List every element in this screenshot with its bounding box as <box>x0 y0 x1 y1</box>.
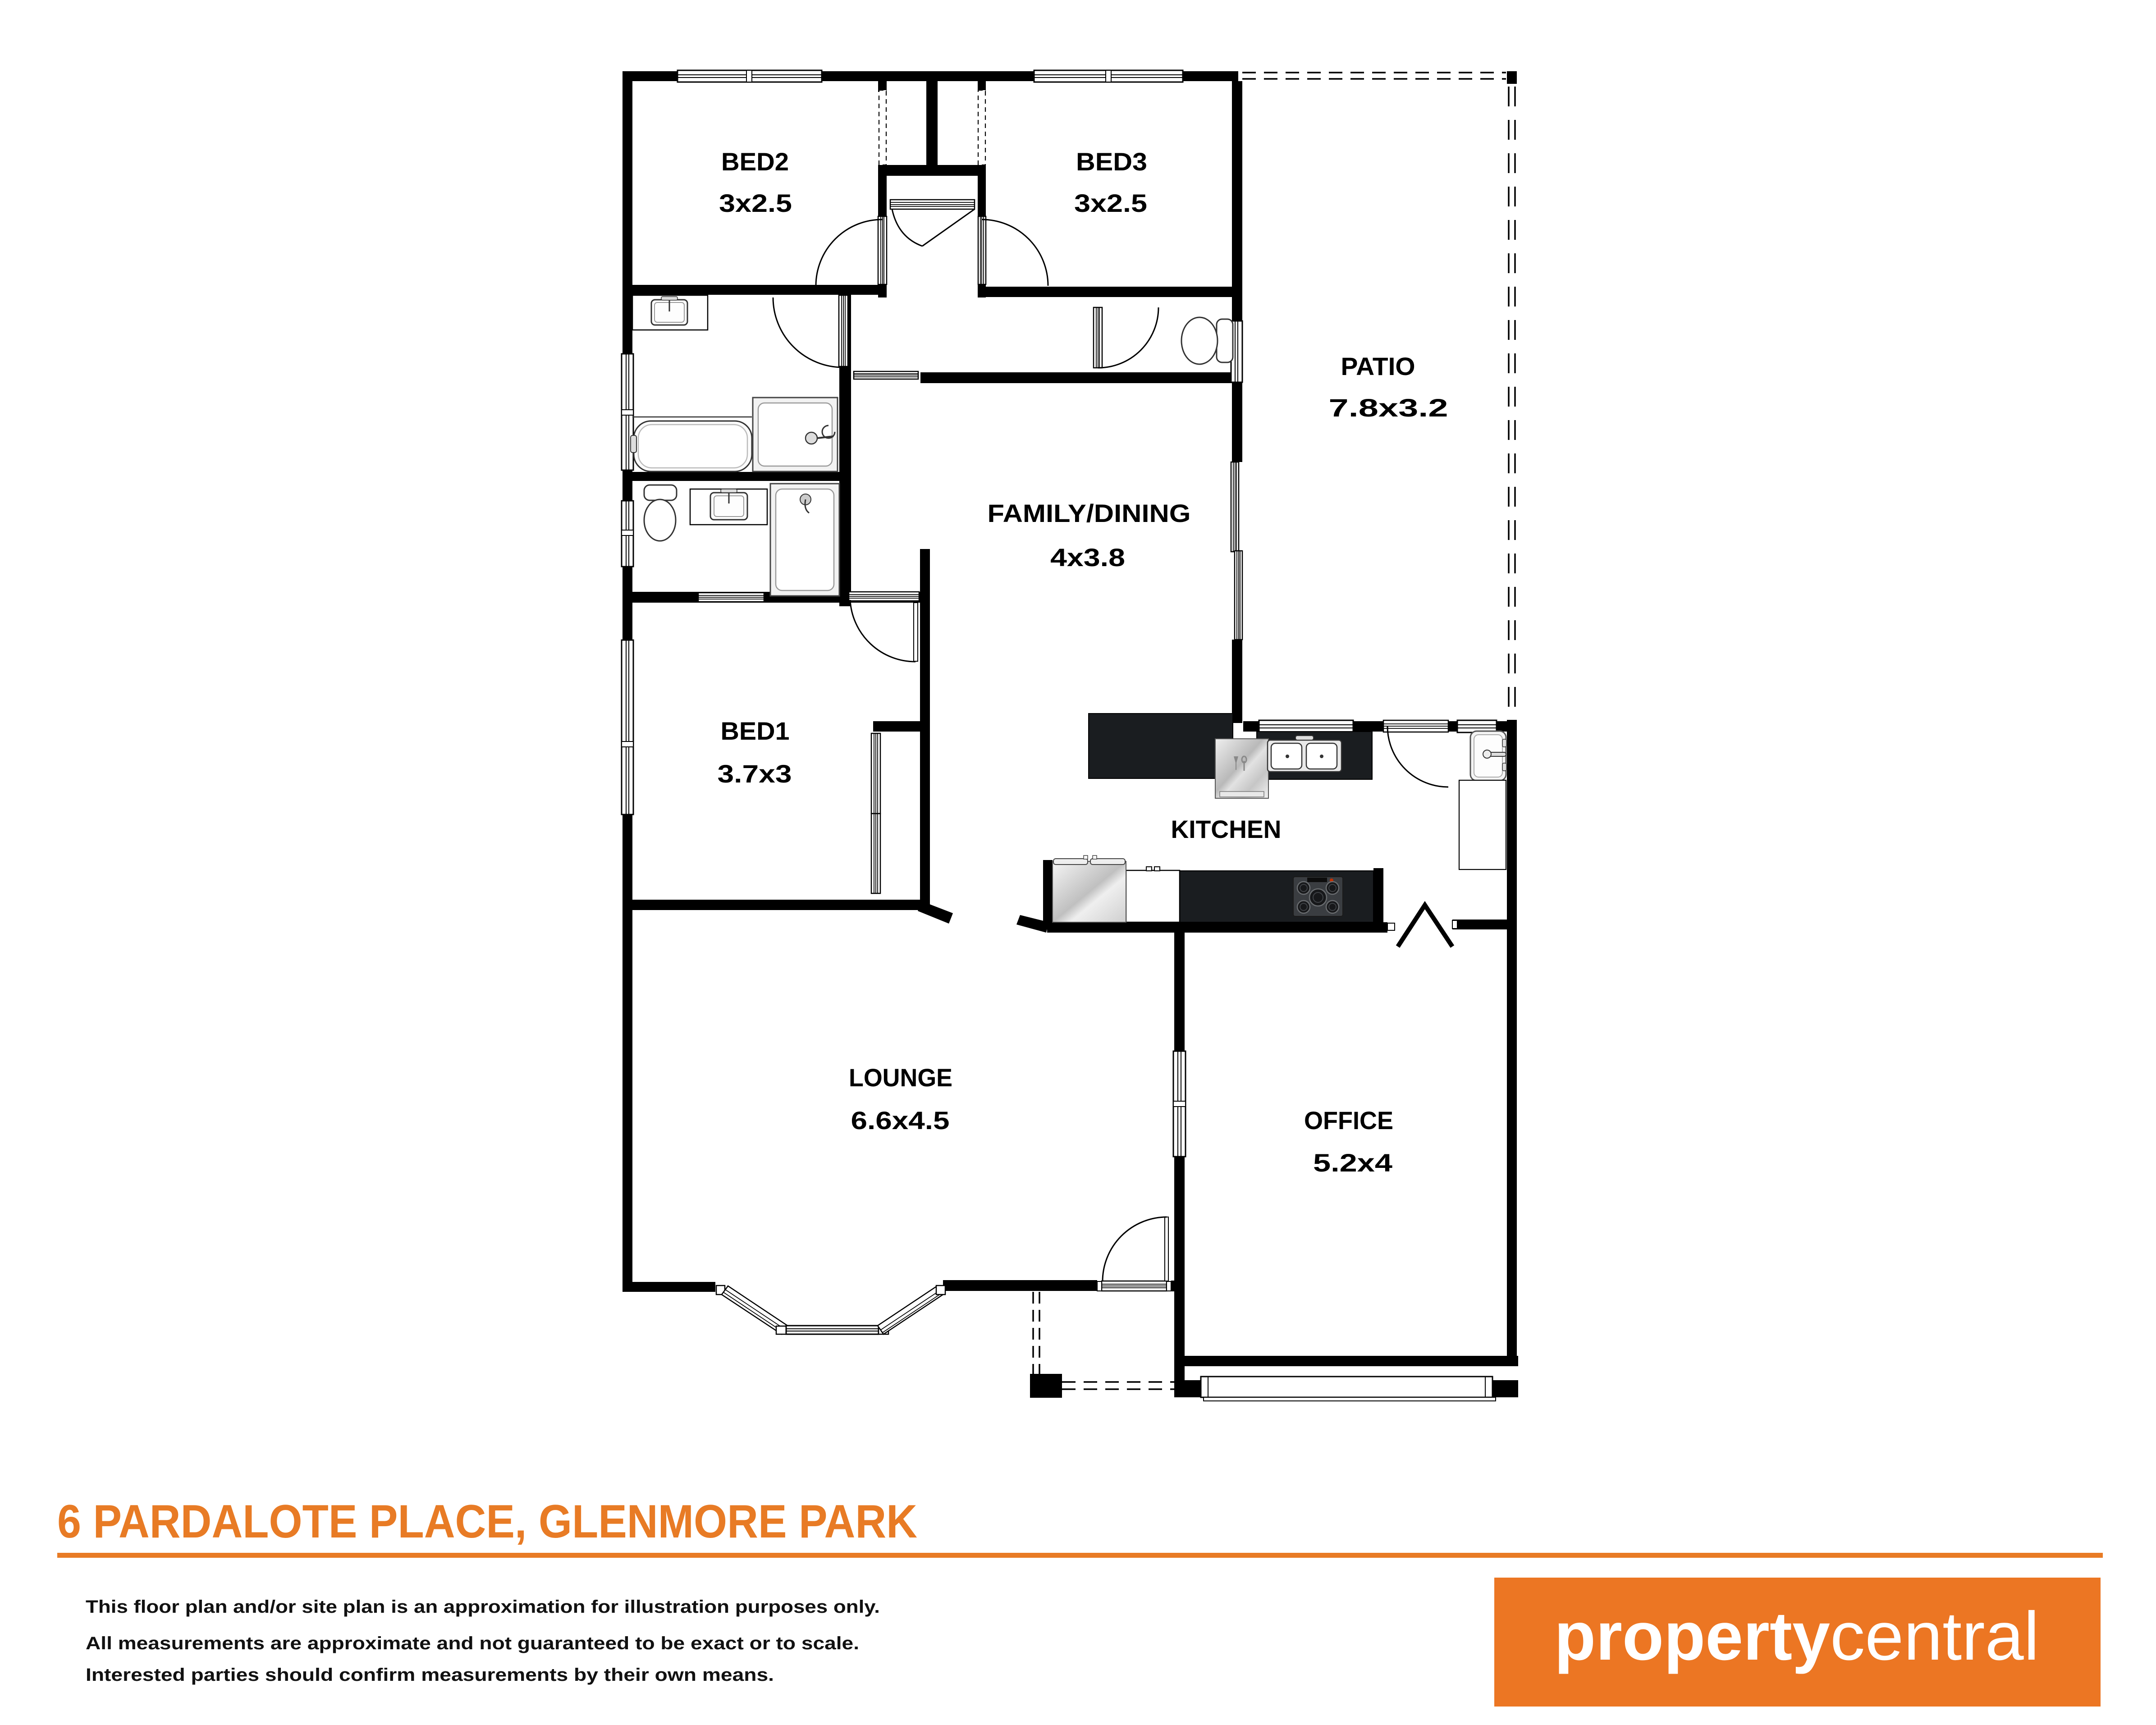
svg-text:LOUNGE: LOUNGE <box>849 1063 952 1092</box>
svg-text:KITCHEN: KITCHEN <box>1171 815 1282 843</box>
svg-text:6 PARDALOTE PLACE, GLENMORE PA: 6 PARDALOTE PLACE, GLENMORE PARK <box>57 1496 917 1548</box>
svg-text:BED3: BED3 <box>1076 147 1147 176</box>
svg-text:Interested parties should conf: Interested parties should confirm measur… <box>86 1665 774 1685</box>
svg-text:FAMILY/DINING: FAMILY/DINING <box>988 499 1191 527</box>
svg-text:OFFICE: OFFICE <box>1304 1106 1393 1135</box>
svg-text:5.2x4: 5.2x4 <box>1313 1148 1392 1177</box>
svg-text:3x2.5: 3x2.5 <box>719 189 792 217</box>
svg-text:4x3.8: 4x3.8 <box>1050 543 1125 572</box>
svg-text:All measurements are approxima: All measurements are approximate and not… <box>86 1633 859 1653</box>
svg-text:propertycentral: propertycentral <box>1554 1598 2039 1675</box>
svg-text:BED1: BED1 <box>721 717 790 745</box>
svg-text:BED2: BED2 <box>721 147 789 176</box>
svg-text:3.7x3: 3.7x3 <box>718 760 792 788</box>
svg-text:PATIO: PATIO <box>1341 352 1415 380</box>
svg-text:This floor plan and/or site pl: This floor plan and/or site plan is an a… <box>86 1597 880 1617</box>
svg-text:6.6x4.5: 6.6x4.5 <box>851 1106 950 1135</box>
svg-text:3x2.5: 3x2.5 <box>1074 189 1147 217</box>
svg-text:7.8x3.2: 7.8x3.2 <box>1329 394 1448 422</box>
